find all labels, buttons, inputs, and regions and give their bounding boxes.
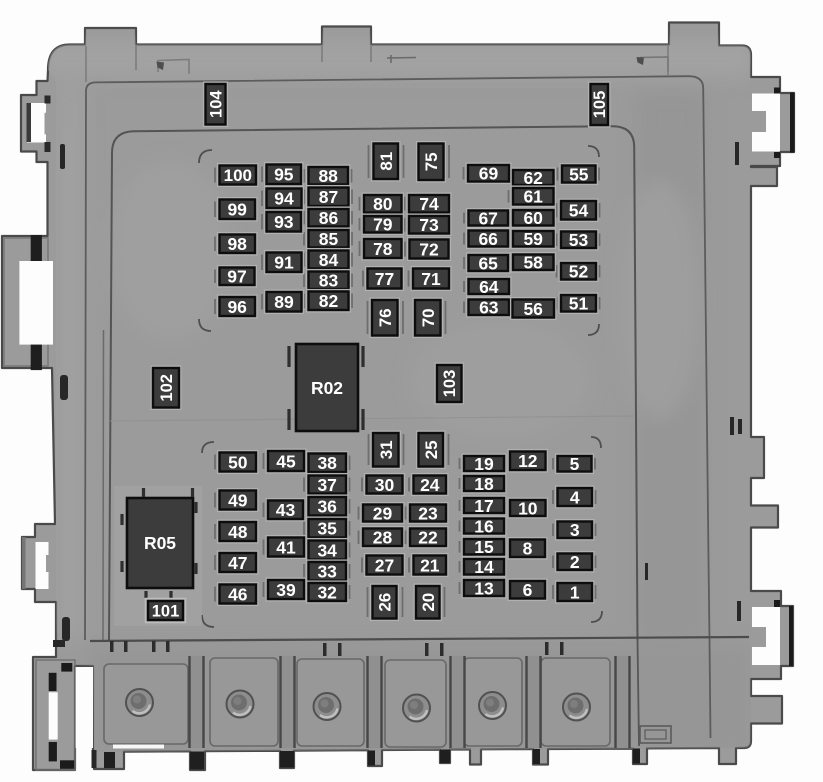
svg-text:63: 63 <box>479 298 499 318</box>
svg-text:2: 2 <box>570 552 580 572</box>
svg-text:95: 95 <box>274 165 294 185</box>
svg-text:53: 53 <box>569 230 589 250</box>
svg-text:85: 85 <box>319 229 339 249</box>
svg-text:48: 48 <box>228 522 248 542</box>
svg-text:71: 71 <box>421 269 441 289</box>
svg-text:50: 50 <box>228 452 248 472</box>
svg-text:5: 5 <box>570 454 580 474</box>
svg-text:30: 30 <box>375 475 395 495</box>
svg-text:4: 4 <box>570 487 580 507</box>
svg-text:88: 88 <box>318 166 338 186</box>
svg-text:99: 99 <box>227 200 247 220</box>
svg-text:24: 24 <box>420 475 440 495</box>
svg-text:23: 23 <box>418 503 438 523</box>
svg-text:56: 56 <box>523 299 543 319</box>
svg-text:67: 67 <box>478 208 497 228</box>
svg-text:86: 86 <box>319 208 339 228</box>
svg-text:47: 47 <box>228 553 247 573</box>
svg-text:73: 73 <box>419 215 439 235</box>
svg-text:31: 31 <box>377 440 396 459</box>
svg-text:34: 34 <box>317 540 337 560</box>
svg-text:16: 16 <box>474 516 494 536</box>
svg-text:29: 29 <box>373 503 393 523</box>
svg-text:R05: R05 <box>144 533 176 553</box>
svg-text:15: 15 <box>474 537 494 557</box>
svg-text:94: 94 <box>274 189 294 209</box>
svg-text:72: 72 <box>419 239 439 259</box>
svg-text:77: 77 <box>375 269 394 289</box>
svg-text:3: 3 <box>570 520 580 540</box>
svg-text:26: 26 <box>376 593 395 612</box>
svg-text:66: 66 <box>478 229 498 249</box>
svg-text:84: 84 <box>319 250 339 270</box>
svg-text:100: 100 <box>224 166 252 185</box>
svg-text:70: 70 <box>419 308 438 327</box>
svg-text:105: 105 <box>591 91 609 119</box>
svg-text:46: 46 <box>228 584 248 604</box>
svg-text:87: 87 <box>319 187 338 207</box>
svg-text:45: 45 <box>276 451 296 471</box>
svg-text:60: 60 <box>523 208 543 228</box>
svg-text:103: 103 <box>441 370 459 398</box>
svg-text:R02: R02 <box>311 378 343 398</box>
svg-text:81: 81 <box>377 152 396 171</box>
svg-text:20: 20 <box>419 593 438 612</box>
svg-text:13: 13 <box>474 578 494 598</box>
svg-text:54: 54 <box>569 201 589 221</box>
svg-text:78: 78 <box>373 239 393 259</box>
svg-text:102: 102 <box>158 374 176 402</box>
svg-text:65: 65 <box>478 253 498 273</box>
svg-text:41: 41 <box>276 537 296 557</box>
svg-text:21: 21 <box>420 555 440 575</box>
svg-text:36: 36 <box>317 497 337 517</box>
svg-text:18: 18 <box>474 474 494 494</box>
svg-text:49: 49 <box>228 490 248 510</box>
svg-text:62: 62 <box>523 168 543 188</box>
svg-text:32: 32 <box>317 582 337 602</box>
svg-text:19: 19 <box>474 454 494 474</box>
svg-text:98: 98 <box>227 234 247 254</box>
svg-text:35: 35 <box>317 519 337 539</box>
svg-text:43: 43 <box>276 500 296 520</box>
svg-text:8: 8 <box>523 539 533 559</box>
svg-text:97: 97 <box>227 267 246 287</box>
svg-text:58: 58 <box>523 253 543 273</box>
svg-text:76: 76 <box>376 308 395 327</box>
svg-text:27: 27 <box>375 555 394 575</box>
svg-text:14: 14 <box>474 557 494 577</box>
svg-text:12: 12 <box>518 451 538 471</box>
svg-text:91: 91 <box>274 253 294 273</box>
svg-text:83: 83 <box>319 271 339 291</box>
svg-text:28: 28 <box>373 528 393 548</box>
svg-text:69: 69 <box>479 164 499 184</box>
svg-text:79: 79 <box>373 215 393 235</box>
svg-text:37: 37 <box>317 475 336 495</box>
svg-text:52: 52 <box>569 262 589 282</box>
svg-text:51: 51 <box>569 294 589 314</box>
svg-text:61: 61 <box>523 187 543 207</box>
svg-text:17: 17 <box>474 496 493 516</box>
svg-text:75: 75 <box>422 152 441 171</box>
svg-text:38: 38 <box>317 453 337 473</box>
svg-text:82: 82 <box>319 291 339 311</box>
svg-text:33: 33 <box>317 562 337 582</box>
svg-text:1: 1 <box>570 582 580 602</box>
svg-text:39: 39 <box>276 580 296 600</box>
svg-text:89: 89 <box>274 292 294 312</box>
svg-text:10: 10 <box>518 498 538 518</box>
svg-text:96: 96 <box>227 297 247 317</box>
svg-text:80: 80 <box>373 194 393 214</box>
svg-text:74: 74 <box>419 194 439 214</box>
svg-text:59: 59 <box>523 229 543 249</box>
svg-text:25: 25 <box>422 440 441 459</box>
svg-text:101: 101 <box>152 603 180 621</box>
svg-text:93: 93 <box>274 212 294 232</box>
svg-text:104: 104 <box>207 90 225 118</box>
svg-text:6: 6 <box>523 580 533 600</box>
svg-text:55: 55 <box>569 164 589 184</box>
svg-text:22: 22 <box>418 528 438 548</box>
svg-text:64: 64 <box>479 277 499 297</box>
